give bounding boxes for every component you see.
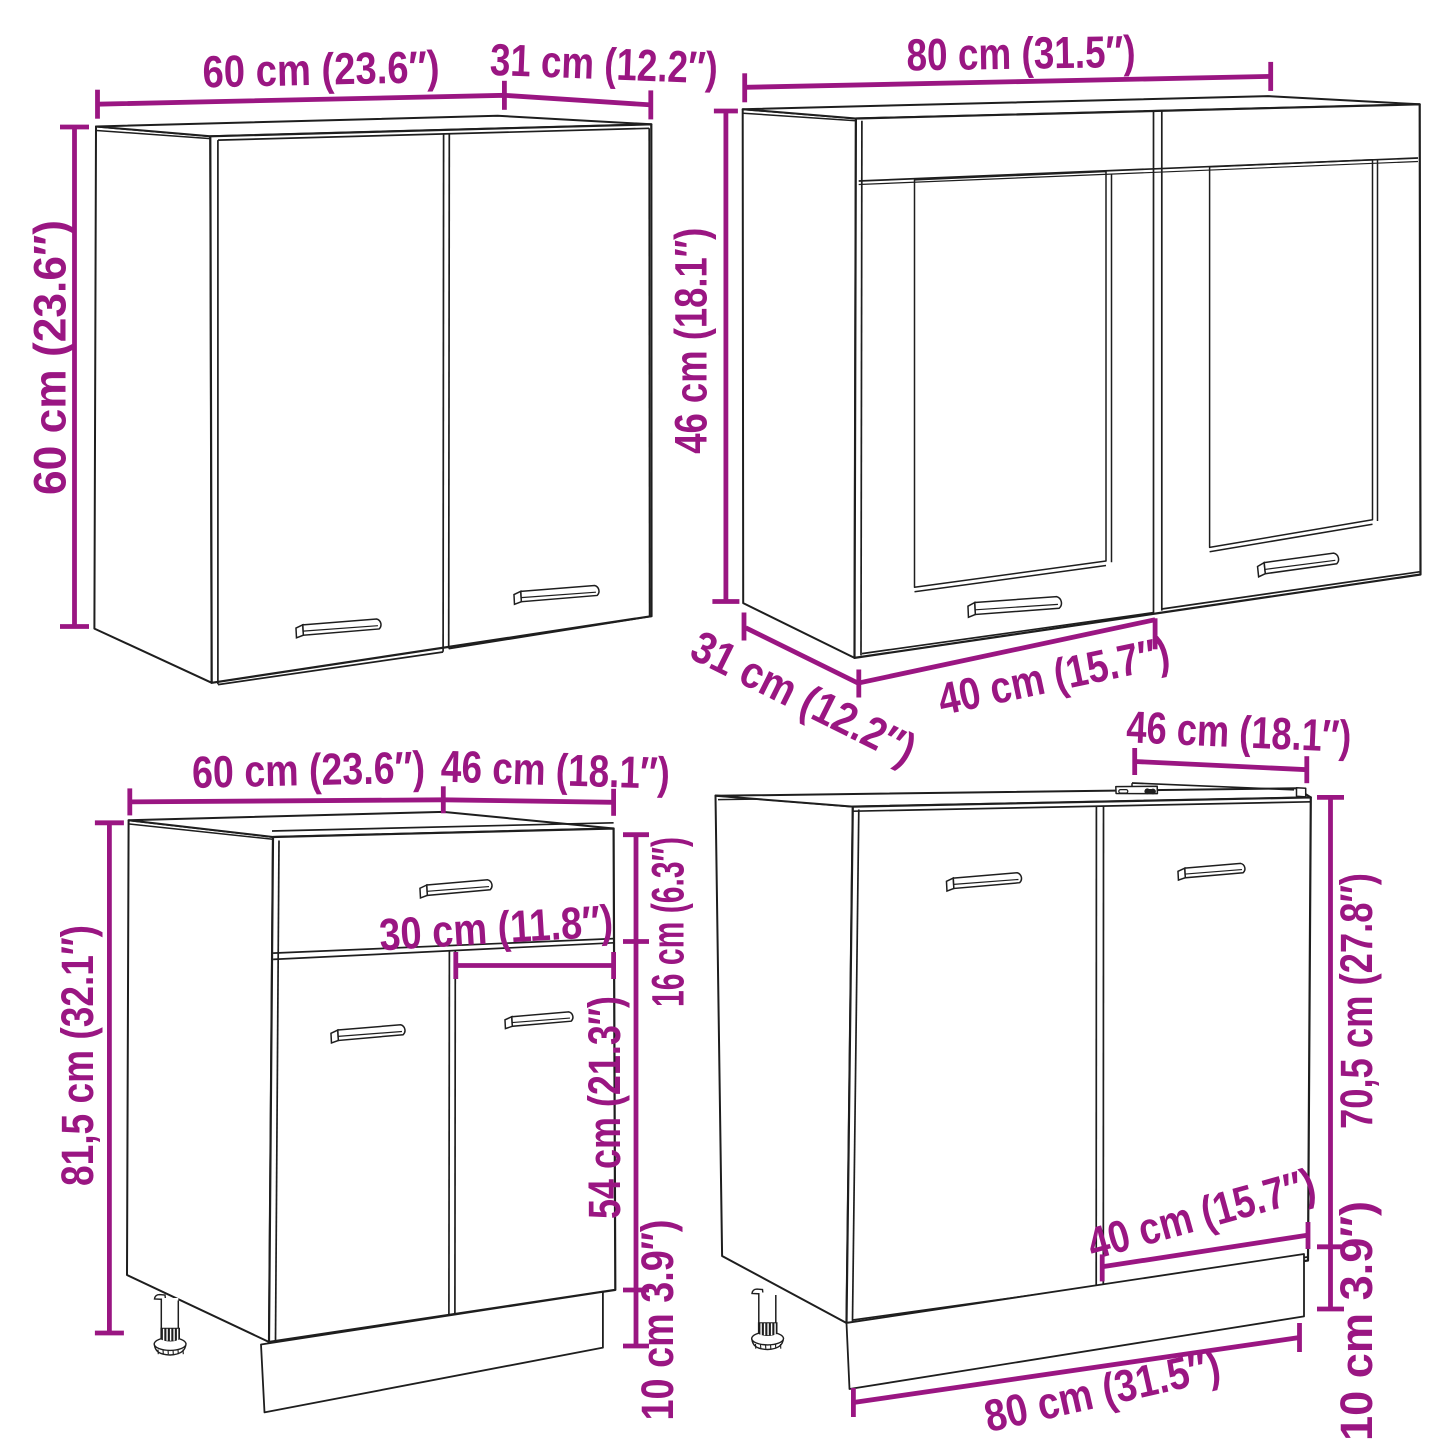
svg-text:60 cm (23.6″): 60 cm (23.6″) — [202, 41, 440, 97]
svg-text:46 cm (18.1″): 46 cm (18.1″) — [1125, 701, 1352, 762]
svg-text:60 cm (23.6″): 60 cm (23.6″) — [25, 220, 76, 495]
svg-text:16 cm (6.3″): 16 cm (6.3″) — [643, 837, 694, 1007]
svg-text:54 cm (21.3″): 54 cm (21.3″) — [579, 996, 630, 1219]
svg-text:31 cm (12.2″): 31 cm (12.2″) — [489, 34, 719, 94]
svg-text:81,5 cm (32.1″): 81,5 cm (32.1″) — [52, 925, 103, 1186]
svg-text:10 cm 3.9″): 10 cm 3.9″) — [632, 1220, 683, 1421]
svg-text:70,5 cm (27.8″): 70,5 cm (27.8″) — [1331, 873, 1382, 1129]
svg-text:46 cm (18.1″): 46 cm (18.1″) — [440, 741, 670, 799]
svg-text:80 cm (31.5″): 80 cm (31.5″) — [906, 26, 1136, 81]
svg-text:10 cm 3.9″): 10 cm 3.9″) — [1331, 1201, 1382, 1441]
svg-text:46 cm (18.1″): 46 cm (18.1″) — [666, 228, 717, 454]
svg-text:60 cm (23.6″): 60 cm (23.6″) — [191, 742, 425, 798]
